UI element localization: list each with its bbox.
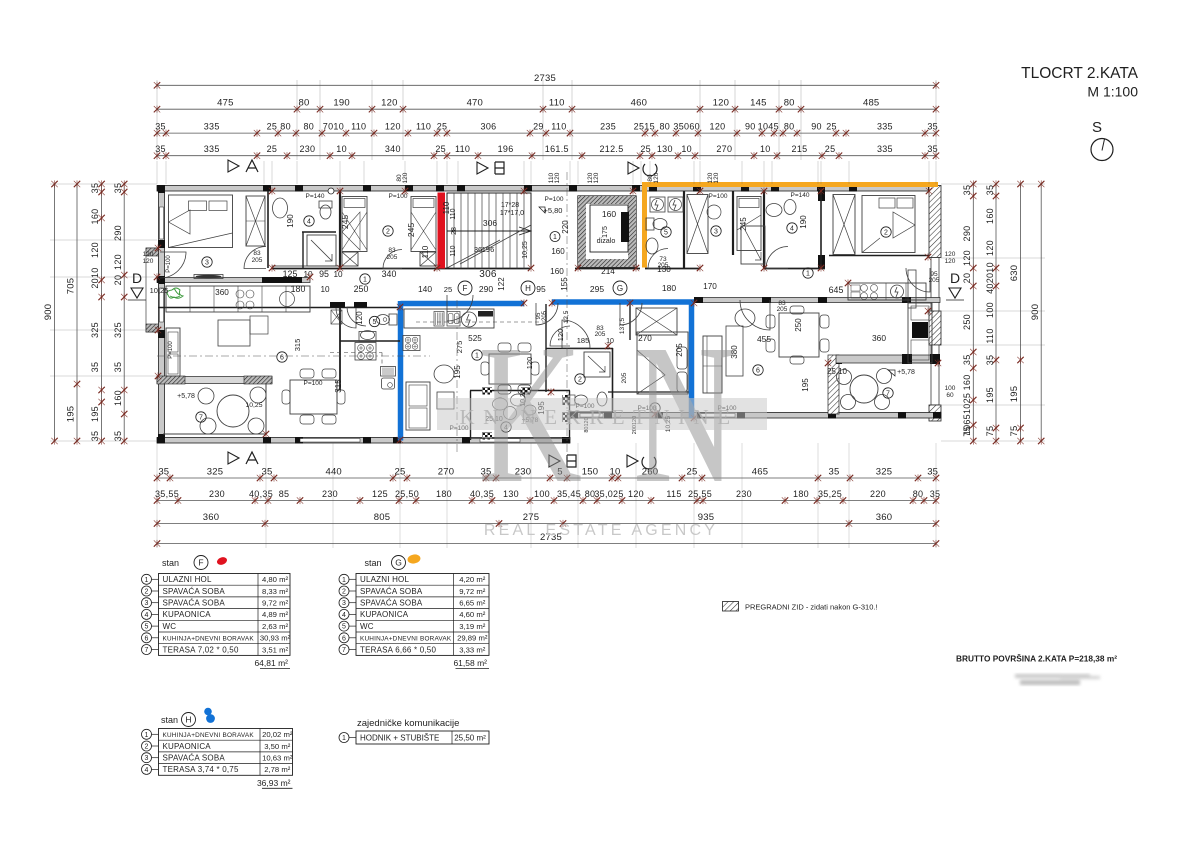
svg-text:10: 10 xyxy=(336,144,347,154)
svg-text:6: 6 xyxy=(342,635,346,642)
svg-text:5: 5 xyxy=(373,319,377,326)
svg-text:35: 35 xyxy=(90,431,100,442)
svg-text:160: 160 xyxy=(550,267,564,276)
svg-text:4,89 m²: 4,89 m² xyxy=(262,610,289,619)
svg-text:25: 25 xyxy=(825,144,836,154)
svg-text:1: 1 xyxy=(145,577,149,584)
svg-text:150: 150 xyxy=(582,467,598,478)
svg-text:83: 83 xyxy=(253,250,261,257)
svg-text:G: G xyxy=(617,284,623,293)
svg-text:1: 1 xyxy=(342,735,346,742)
svg-text:315: 315 xyxy=(293,339,302,352)
svg-text:TERASA 3,74 * 0,75: TERASA 3,74 * 0,75 xyxy=(163,765,239,774)
svg-text:360: 360 xyxy=(203,512,219,523)
svg-text:8,33 m²: 8,33 m² xyxy=(262,587,289,596)
svg-text:25: 25 xyxy=(640,144,651,154)
svg-text:KUPAONICA: KUPAONICA xyxy=(163,742,212,751)
svg-text:120: 120 xyxy=(381,98,397,109)
svg-text:SPAVAĆA SOBA: SPAVAĆA SOBA xyxy=(360,599,423,608)
svg-text:60: 60 xyxy=(946,392,954,399)
svg-text:6,65 m²: 6,65 m² xyxy=(459,599,486,608)
svg-text:325: 325 xyxy=(876,467,892,478)
svg-text:250: 250 xyxy=(354,284,369,294)
svg-text:306: 306 xyxy=(479,269,497,280)
svg-text:230: 230 xyxy=(322,489,338,499)
svg-text:470: 470 xyxy=(467,98,483,109)
svg-text:80: 80 xyxy=(299,98,310,109)
svg-text:290: 290 xyxy=(962,226,972,242)
svg-text:120: 120 xyxy=(385,122,401,132)
svg-text:KUHINJA+DNEVNI BORAVAK: KUHINJA+DNEVNI BORAVAK xyxy=(163,636,255,643)
svg-text:+5,78: +5,78 xyxy=(177,393,195,400)
svg-text:4: 4 xyxy=(145,612,149,619)
svg-text:3,50 m²: 3,50 m² xyxy=(264,742,291,751)
svg-text:30,93 m²: 30,93 m² xyxy=(260,634,291,643)
svg-text:TERASA 7,02 * 0,50: TERASA 7,02 * 0,50 xyxy=(163,645,239,654)
svg-text:stan: stan xyxy=(161,715,178,725)
svg-text:75: 75 xyxy=(1009,426,1020,437)
svg-text:195: 195 xyxy=(90,406,100,422)
svg-text:20: 20 xyxy=(962,273,972,284)
svg-text:335: 335 xyxy=(204,144,220,154)
svg-text:160: 160 xyxy=(551,247,565,256)
svg-text:335: 335 xyxy=(877,144,893,154)
svg-text:25,10: 25,10 xyxy=(827,367,848,376)
svg-text:20,02 m²: 20,02 m² xyxy=(262,730,293,739)
svg-text:10,63 m²: 10,63 m² xyxy=(262,754,293,763)
svg-text:2: 2 xyxy=(145,589,149,596)
svg-text:1: 1 xyxy=(145,732,149,739)
svg-text:161.5: 161.5 xyxy=(545,144,569,154)
svg-text:196: 196 xyxy=(498,144,514,154)
svg-text:D: D xyxy=(132,270,142,286)
svg-text:7: 7 xyxy=(199,415,203,422)
svg-text:10: 10 xyxy=(333,270,343,279)
svg-text:35: 35 xyxy=(262,467,273,478)
svg-text:155: 155 xyxy=(560,277,569,291)
svg-text:H: H xyxy=(525,284,531,293)
svg-text:205: 205 xyxy=(658,262,669,269)
svg-text:120: 120 xyxy=(143,251,154,258)
svg-text:140: 140 xyxy=(418,284,432,294)
svg-text:75: 75 xyxy=(985,426,995,437)
svg-text:35: 35 xyxy=(927,467,938,478)
svg-text:7010: 7010 xyxy=(323,122,344,132)
svg-text:110: 110 xyxy=(549,98,565,109)
svg-text:235: 235 xyxy=(600,122,616,132)
svg-text:360: 360 xyxy=(215,288,229,297)
svg-text:110: 110 xyxy=(442,201,451,214)
svg-text:110: 110 xyxy=(421,245,430,258)
svg-text:145: 145 xyxy=(750,98,766,109)
svg-text:306: 306 xyxy=(481,122,497,132)
svg-text:25: 25 xyxy=(267,144,278,154)
svg-text:120: 120 xyxy=(713,172,720,183)
svg-text:335: 335 xyxy=(204,122,220,132)
svg-text:10: 10 xyxy=(681,144,692,154)
svg-text:35: 35 xyxy=(962,185,972,196)
svg-text:28: 28 xyxy=(451,227,458,235)
svg-text:110: 110 xyxy=(551,122,566,132)
svg-text:P=100: P=100 xyxy=(709,193,728,200)
svg-text:10: 10 xyxy=(610,467,621,478)
svg-text:D: D xyxy=(950,270,960,286)
svg-text:125: 125 xyxy=(372,489,388,499)
svg-text:125: 125 xyxy=(283,269,298,279)
svg-text:275: 275 xyxy=(455,341,464,354)
svg-text:29,89 m²: 29,89 m² xyxy=(457,634,488,643)
svg-text:170: 170 xyxy=(703,282,717,291)
svg-text:95: 95 xyxy=(319,269,329,279)
svg-text:2,78 m²: 2,78 m² xyxy=(264,765,291,774)
svg-text:35: 35 xyxy=(90,362,100,373)
svg-text:195: 195 xyxy=(1009,386,1020,402)
svg-text:205: 205 xyxy=(621,372,628,383)
svg-text:270: 270 xyxy=(438,467,454,478)
svg-text:122: 122 xyxy=(497,277,506,291)
svg-text:25: 25 xyxy=(267,122,278,132)
svg-text:360: 360 xyxy=(876,512,892,523)
svg-text:7: 7 xyxy=(886,391,890,398)
svg-text:S: S xyxy=(1092,119,1102,136)
svg-text:95: 95 xyxy=(536,284,546,294)
svg-text:120: 120 xyxy=(90,242,100,258)
svg-text:1045: 1045 xyxy=(758,122,779,132)
svg-text:245: 245 xyxy=(406,223,416,237)
svg-text:9,72 m²: 9,72 m² xyxy=(262,599,289,608)
svg-text:465: 465 xyxy=(752,467,768,478)
svg-text:35: 35 xyxy=(985,355,995,366)
svg-text:25: 25 xyxy=(826,122,837,132)
svg-text:6: 6 xyxy=(145,635,149,642)
svg-text:110: 110 xyxy=(416,122,431,132)
svg-text:5: 5 xyxy=(145,624,149,631)
svg-text:36: 36 xyxy=(474,245,482,254)
svg-text:215: 215 xyxy=(792,144,808,154)
svg-text:180: 180 xyxy=(793,489,809,499)
svg-text:35: 35 xyxy=(927,144,938,154)
svg-text:100: 100 xyxy=(945,385,956,392)
svg-text:36,93 m²: 36,93 m² xyxy=(257,778,291,788)
svg-text:110: 110 xyxy=(985,328,995,343)
svg-text:485: 485 xyxy=(863,98,879,109)
svg-text:P=100: P=100 xyxy=(304,380,323,387)
svg-text:6: 6 xyxy=(280,355,284,362)
svg-text:306: 306 xyxy=(483,218,497,228)
svg-text:stan: stan xyxy=(365,558,382,568)
svg-text:475: 475 xyxy=(217,98,233,109)
svg-text:1: 1 xyxy=(342,577,346,584)
svg-text:455: 455 xyxy=(757,334,771,344)
svg-text:80: 80 xyxy=(659,122,670,132)
svg-text:180: 180 xyxy=(291,284,306,294)
svg-text:64,81 m²: 64,81 m² xyxy=(254,658,288,668)
svg-text:195: 195 xyxy=(801,378,810,392)
svg-text:80: 80 xyxy=(784,122,795,132)
svg-text:2735: 2735 xyxy=(534,73,556,84)
svg-text:360: 360 xyxy=(872,333,886,343)
svg-text:35: 35 xyxy=(829,467,840,478)
svg-text:35060: 35060 xyxy=(673,122,700,132)
svg-text:137,5: 137,5 xyxy=(619,317,626,334)
svg-text:G: G xyxy=(395,558,402,568)
svg-text:4: 4 xyxy=(145,767,149,774)
svg-text:110: 110 xyxy=(450,208,457,219)
svg-text:160: 160 xyxy=(985,208,995,224)
svg-text:120: 120 xyxy=(143,258,154,265)
svg-text:10,25: 10,25 xyxy=(245,402,262,409)
svg-text:TLOCRT 2.KATA: TLOCRT 2.KATA xyxy=(1021,65,1139,82)
svg-text:270: 270 xyxy=(716,144,732,154)
svg-text:25,50: 25,50 xyxy=(395,489,419,499)
svg-text:+5,78: +5,78 xyxy=(897,369,915,376)
svg-text:dizalo: dizalo xyxy=(597,236,616,245)
svg-text:10,25: 10,25 xyxy=(522,241,529,259)
svg-text:250: 250 xyxy=(962,314,972,330)
svg-text:KN NEKRETNINE: KN NEKRETNINE xyxy=(459,405,738,429)
svg-text:WC: WC xyxy=(360,622,374,631)
svg-text:440: 440 xyxy=(325,467,341,478)
svg-text:9,72 m²: 9,72 m² xyxy=(459,587,486,596)
svg-text:40,35: 40,35 xyxy=(249,489,273,499)
svg-text:REAL ESTATE AGENCY: REAL ESTATE AGENCY xyxy=(484,522,718,539)
svg-text:80: 80 xyxy=(280,122,291,132)
svg-text:205: 205 xyxy=(252,257,263,264)
svg-text:190: 190 xyxy=(286,214,295,228)
svg-text:3: 3 xyxy=(145,600,149,607)
svg-text:7: 7 xyxy=(342,647,346,654)
svg-text:zajedničke komunikacije: zajedničke komunikacije xyxy=(357,718,459,729)
svg-text:340: 340 xyxy=(385,144,401,154)
svg-text:BRUTTO POVRŠINA 2.KATA P=218,: BRUTTO POVRŠINA 2.KATA P=218,38 m² xyxy=(956,653,1117,664)
svg-text:3: 3 xyxy=(714,229,718,236)
svg-text:10: 10 xyxy=(303,270,313,279)
svg-text:160: 160 xyxy=(90,209,100,225)
svg-text:2: 2 xyxy=(386,229,390,236)
svg-text:KUPAONICA: KUPAONICA xyxy=(163,610,212,619)
svg-text:F: F xyxy=(463,284,468,293)
svg-text:SPAVAĆA SOBA: SPAVAĆA SOBA xyxy=(360,587,423,596)
svg-text:WC: WC xyxy=(163,622,177,631)
svg-text:325: 325 xyxy=(207,467,223,478)
svg-text:645: 645 xyxy=(829,285,844,295)
svg-text:120: 120 xyxy=(985,240,995,256)
svg-text:KUPAONICA: KUPAONICA xyxy=(360,610,409,619)
svg-text:2: 2 xyxy=(342,589,346,596)
svg-text:TERASA 6,66 * 0,50: TERASA 6,66 * 0,50 xyxy=(360,645,436,654)
svg-text:10: 10 xyxy=(320,285,330,294)
svg-text:4,60 m²: 4,60 m² xyxy=(459,610,486,619)
svg-text:335: 335 xyxy=(877,122,893,132)
svg-text:2515: 2515 xyxy=(634,122,655,132)
svg-text:35,025: 35,025 xyxy=(594,489,623,499)
svg-text:F: F xyxy=(198,558,203,568)
svg-text:190: 190 xyxy=(799,215,808,229)
svg-text:195: 195 xyxy=(985,387,995,403)
svg-text:90: 90 xyxy=(745,122,756,132)
svg-text:1: 1 xyxy=(806,271,810,278)
svg-text:3,33 m²: 3,33 m² xyxy=(459,645,486,654)
svg-text:630: 630 xyxy=(1009,265,1020,281)
svg-text:230: 230 xyxy=(209,489,225,499)
svg-text:120: 120 xyxy=(355,311,364,325)
svg-text:P=100: P=100 xyxy=(545,196,564,203)
svg-text:3,19 m²: 3,19 m² xyxy=(459,622,486,631)
svg-text:220: 220 xyxy=(870,489,886,499)
svg-text:120: 120 xyxy=(713,98,729,109)
svg-text:20: 20 xyxy=(113,275,123,286)
svg-text:290: 290 xyxy=(479,284,493,294)
svg-text:120: 120 xyxy=(710,122,726,132)
svg-text:705: 705 xyxy=(66,278,77,294)
svg-text:120: 120 xyxy=(653,172,660,183)
svg-text:25: 25 xyxy=(435,144,446,154)
svg-text:SPAVAĆA SOBA: SPAVAĆA SOBA xyxy=(163,754,226,763)
svg-text:900: 900 xyxy=(1030,304,1041,320)
svg-text:460: 460 xyxy=(631,98,647,109)
svg-text:220: 220 xyxy=(561,220,570,234)
svg-text:35: 35 xyxy=(90,183,100,194)
svg-text:205: 205 xyxy=(929,277,940,284)
svg-text:190: 190 xyxy=(333,98,349,109)
svg-text:25: 25 xyxy=(437,122,448,132)
svg-text:4: 4 xyxy=(342,612,346,619)
svg-text:195: 195 xyxy=(453,365,462,379)
svg-text:2010: 2010 xyxy=(90,267,100,288)
svg-text:230: 230 xyxy=(299,144,315,154)
svg-text:4,80 m²: 4,80 m² xyxy=(262,575,289,584)
svg-text:35,55: 35,55 xyxy=(155,489,179,499)
svg-text:PREGRADNI ZID - zidati nakon G: PREGRADNI ZID - zidati nakon G-310.! xyxy=(745,603,878,612)
svg-text:90: 90 xyxy=(811,122,822,132)
svg-text:130: 130 xyxy=(657,144,673,154)
svg-text:4: 4 xyxy=(307,219,311,226)
svg-text:245: 245 xyxy=(739,217,748,231)
svg-text:245: 245 xyxy=(340,215,350,229)
svg-text:KUHINJA+DNEVNI BORAVAK: KUHINJA+DNEVNI BORAVAK xyxy=(360,636,452,643)
svg-text:3: 3 xyxy=(342,600,346,607)
svg-text:80: 80 xyxy=(784,98,795,109)
svg-text:160: 160 xyxy=(962,374,972,390)
svg-text:805: 805 xyxy=(374,512,390,523)
svg-text:110: 110 xyxy=(351,122,366,132)
svg-text:290: 290 xyxy=(113,225,123,241)
svg-text:120: 120 xyxy=(402,172,409,183)
svg-text:120: 120 xyxy=(945,258,956,265)
svg-text:25: 25 xyxy=(444,285,452,294)
svg-text:4,20 m²: 4,20 m² xyxy=(459,575,486,584)
svg-text:110: 110 xyxy=(450,245,457,256)
svg-text:M 1:100: M 1:100 xyxy=(1087,84,1138,100)
svg-text:17*28: 17*28 xyxy=(501,202,519,209)
svg-text:100: 100 xyxy=(985,302,995,318)
svg-text:214: 214 xyxy=(601,267,615,276)
svg-text:120: 120 xyxy=(554,172,561,183)
svg-text:340: 340 xyxy=(382,269,397,279)
svg-text:160: 160 xyxy=(602,209,616,219)
svg-text:1: 1 xyxy=(363,277,367,284)
svg-text:3,51 m²: 3,51 m² xyxy=(262,645,289,654)
svg-text:35: 35 xyxy=(930,489,941,499)
svg-text:35,25: 35,25 xyxy=(818,489,842,499)
svg-text:900: 900 xyxy=(43,304,54,320)
svg-text:61,58 m²: 61,58 m² xyxy=(453,658,487,668)
svg-text:80: 80 xyxy=(303,122,314,132)
svg-text:160: 160 xyxy=(113,390,123,406)
svg-text:HODNIK + STUBIŠTE: HODNIK + STUBIŠTE xyxy=(360,734,439,743)
svg-text:2,63 m²: 2,63 m² xyxy=(262,622,289,631)
svg-text:KUHINJA+DNEVNI BORAVAK: KUHINJA+DNEVNI BORAVAK xyxy=(163,732,255,739)
svg-text:205: 205 xyxy=(387,254,398,261)
svg-text:17*17,0: 17*17,0 xyxy=(500,210,524,217)
svg-text:6: 6 xyxy=(756,368,760,375)
svg-text:295: 295 xyxy=(590,284,604,294)
svg-text:35: 35 xyxy=(113,362,123,373)
svg-text:120: 120 xyxy=(945,251,956,258)
svg-text:195: 195 xyxy=(66,406,77,422)
svg-text:212.5: 212.5 xyxy=(599,144,623,154)
svg-text:85: 85 xyxy=(279,489,290,499)
svg-text:35: 35 xyxy=(927,122,938,132)
svg-text:2: 2 xyxy=(145,744,149,751)
svg-text:35: 35 xyxy=(158,467,169,478)
svg-text:250: 250 xyxy=(794,318,803,332)
svg-text:P=100: P=100 xyxy=(166,255,172,273)
svg-text:110: 110 xyxy=(455,144,470,154)
svg-text:83: 83 xyxy=(388,247,396,254)
svg-text:205: 205 xyxy=(595,331,606,338)
svg-text:2: 2 xyxy=(884,230,888,237)
svg-text:75: 75 xyxy=(962,426,972,437)
svg-text:ULAZNI HOL: ULAZNI HOL xyxy=(360,575,409,584)
svg-text:35: 35 xyxy=(962,354,972,365)
svg-text:P=140: P=140 xyxy=(306,193,325,200)
svg-text:205: 205 xyxy=(777,306,788,313)
svg-text:7: 7 xyxy=(145,647,149,654)
svg-text:H: H xyxy=(185,715,191,725)
svg-text:SPAVAĆA SOBA: SPAVAĆA SOBA xyxy=(163,599,226,608)
svg-text:180: 180 xyxy=(436,489,452,499)
svg-text:stan: stan xyxy=(162,558,179,568)
svg-text:180: 180 xyxy=(662,283,676,293)
svg-text:120: 120 xyxy=(113,254,123,270)
svg-text:196: 196 xyxy=(482,245,495,254)
svg-text:29: 29 xyxy=(533,122,544,132)
svg-text:1: 1 xyxy=(553,234,557,241)
svg-text:3: 3 xyxy=(145,755,149,762)
svg-text:120: 120 xyxy=(593,172,600,183)
svg-text:P=140: P=140 xyxy=(791,192,810,199)
svg-text:3: 3 xyxy=(205,260,209,267)
svg-text:402010: 402010 xyxy=(985,262,995,294)
svg-text:+5,80: +5,80 xyxy=(544,206,563,215)
svg-text:4: 4 xyxy=(790,226,794,233)
svg-text:10,25: 10,25 xyxy=(150,286,169,295)
svg-text:315: 315 xyxy=(334,379,343,393)
svg-text:SPAVAĆA SOBA: SPAVAĆA SOBA xyxy=(163,587,226,596)
svg-text:ULAZNI HOL: ULAZNI HOL xyxy=(163,575,212,584)
svg-text:35: 35 xyxy=(113,431,123,442)
svg-text:230: 230 xyxy=(736,489,752,499)
svg-text:5: 5 xyxy=(664,230,668,237)
svg-text:25,50 m²: 25,50 m² xyxy=(454,734,486,743)
svg-text:80: 80 xyxy=(913,489,924,499)
svg-text:35: 35 xyxy=(113,183,123,194)
svg-text:10: 10 xyxy=(760,144,771,154)
svg-text:35: 35 xyxy=(985,185,995,196)
svg-text:5: 5 xyxy=(342,624,346,631)
